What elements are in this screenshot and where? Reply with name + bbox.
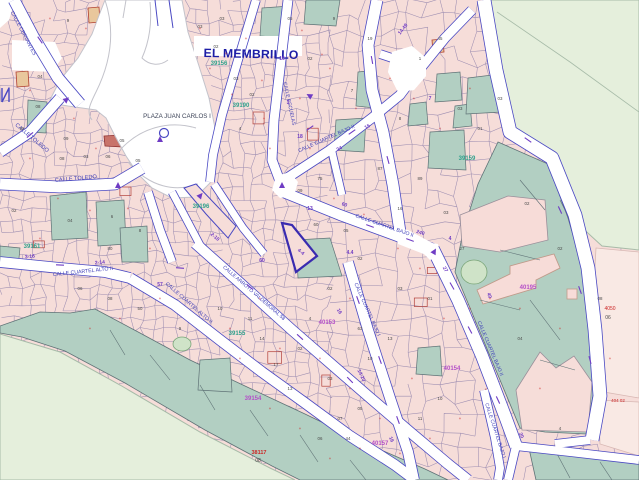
svg-text:08: 08 <box>598 296 603 301</box>
svg-text:02: 02 <box>328 286 333 291</box>
svg-text:PLAZA JUAN CARLOS I: PLAZA JUAN CARLOS I <box>143 113 211 120</box>
svg-text:02: 02 <box>558 246 563 251</box>
svg-text:75: 75 <box>318 176 323 181</box>
svg-text:05: 05 <box>120 138 125 143</box>
svg-text:08: 08 <box>108 296 113 301</box>
svg-text:89: 89 <box>418 176 423 181</box>
svg-text:40195: 40195 <box>520 285 537 291</box>
svg-text:40153: 40153 <box>319 320 336 326</box>
svg-text:18: 18 <box>297 134 303 140</box>
svg-text:60: 60 <box>314 222 319 227</box>
svg-text:10: 10 <box>438 396 443 401</box>
svg-text:39159: 39159 <box>459 156 476 162</box>
svg-text:11: 11 <box>418 416 423 421</box>
svg-text:27: 27 <box>460 246 465 251</box>
svg-text:02: 02 <box>250 92 255 97</box>
svg-text:40157: 40157 <box>372 441 389 447</box>
svg-text:2-14: 2-14 <box>95 260 106 267</box>
svg-text:03: 03 <box>84 154 89 159</box>
svg-text:03: 03 <box>444 210 449 215</box>
svg-text:04: 04 <box>38 74 43 79</box>
svg-text:4: 4 <box>449 236 452 242</box>
svg-text:39155: 39155 <box>229 331 246 337</box>
svg-text:60: 60 <box>259 258 265 264</box>
svg-text:03: 03 <box>398 286 403 291</box>
svg-text:06: 06 <box>106 154 111 159</box>
svg-text:63: 63 <box>358 326 363 331</box>
svg-text:06: 06 <box>318 436 323 441</box>
svg-text:01: 01 <box>478 126 483 131</box>
svg-text:05: 05 <box>344 228 349 233</box>
svg-text:02: 02 <box>298 346 303 351</box>
svg-text:4050: 4050 <box>604 306 615 312</box>
svg-text:02: 02 <box>12 208 17 213</box>
svg-text:03: 03 <box>220 16 225 21</box>
svg-text:02: 02 <box>214 44 219 49</box>
svg-text:19: 19 <box>368 36 373 41</box>
svg-text:08: 08 <box>36 104 41 109</box>
svg-text:404 02: 404 02 <box>611 398 625 403</box>
svg-text:50: 50 <box>138 306 143 311</box>
svg-text:44: 44 <box>346 436 351 441</box>
svg-text:57: 57 <box>157 282 163 288</box>
svg-text:05: 05 <box>358 406 363 411</box>
svg-text:04: 04 <box>518 336 523 341</box>
svg-text:03: 03 <box>498 96 503 101</box>
svg-text:4.4: 4.4 <box>347 250 354 256</box>
svg-text:39190: 39190 <box>233 103 250 109</box>
svg-text:09: 09 <box>298 188 303 193</box>
svg-text:13: 13 <box>288 386 293 391</box>
svg-text:03: 03 <box>458 106 463 111</box>
svg-text:45: 45 <box>438 36 443 41</box>
svg-text:02: 02 <box>358 256 363 261</box>
svg-text:87: 87 <box>378 166 383 171</box>
svg-text:11: 11 <box>248 316 253 321</box>
svg-text:7: 7 <box>429 96 432 102</box>
svg-text:03: 03 <box>328 376 333 381</box>
svg-text:02: 02 <box>525 201 530 206</box>
svg-text:09: 09 <box>64 136 69 141</box>
svg-text:40154: 40154 <box>444 366 461 372</box>
svg-text:16: 16 <box>279 56 285 62</box>
svg-text:05: 05 <box>288 16 293 21</box>
svg-text:3-16: 3-16 <box>25 254 36 261</box>
svg-text:38117: 38117 <box>252 450 267 456</box>
svg-text:13: 13 <box>307 206 313 212</box>
svg-text:39154: 39154 <box>245 396 262 402</box>
svg-text:08: 08 <box>255 458 261 464</box>
svg-text:02: 02 <box>308 56 313 61</box>
svg-text:14: 14 <box>260 336 265 341</box>
svg-text:39161: 39161 <box>24 244 41 250</box>
svg-text:06: 06 <box>605 315 611 321</box>
svg-text:10: 10 <box>368 356 373 361</box>
svg-text:39156: 39156 <box>211 61 228 67</box>
svg-text:39196: 39196 <box>193 204 210 210</box>
svg-text:03: 03 <box>234 76 239 81</box>
svg-text:80: 80 <box>108 246 113 251</box>
svg-text:3: 3 <box>287 100 290 106</box>
svg-text:01: 01 <box>428 296 433 301</box>
svg-text:05: 05 <box>136 158 141 163</box>
svg-text:06: 06 <box>78 286 83 291</box>
svg-text:10: 10 <box>218 306 223 311</box>
svg-text:08: 08 <box>60 156 65 161</box>
svg-text:07: 07 <box>338 416 343 421</box>
svg-text:04: 04 <box>68 218 73 223</box>
svg-text:17: 17 <box>274 362 279 367</box>
svg-text:65: 65 <box>20 126 25 131</box>
svg-text:13: 13 <box>388 336 393 341</box>
svg-text:16: 16 <box>398 206 403 211</box>
